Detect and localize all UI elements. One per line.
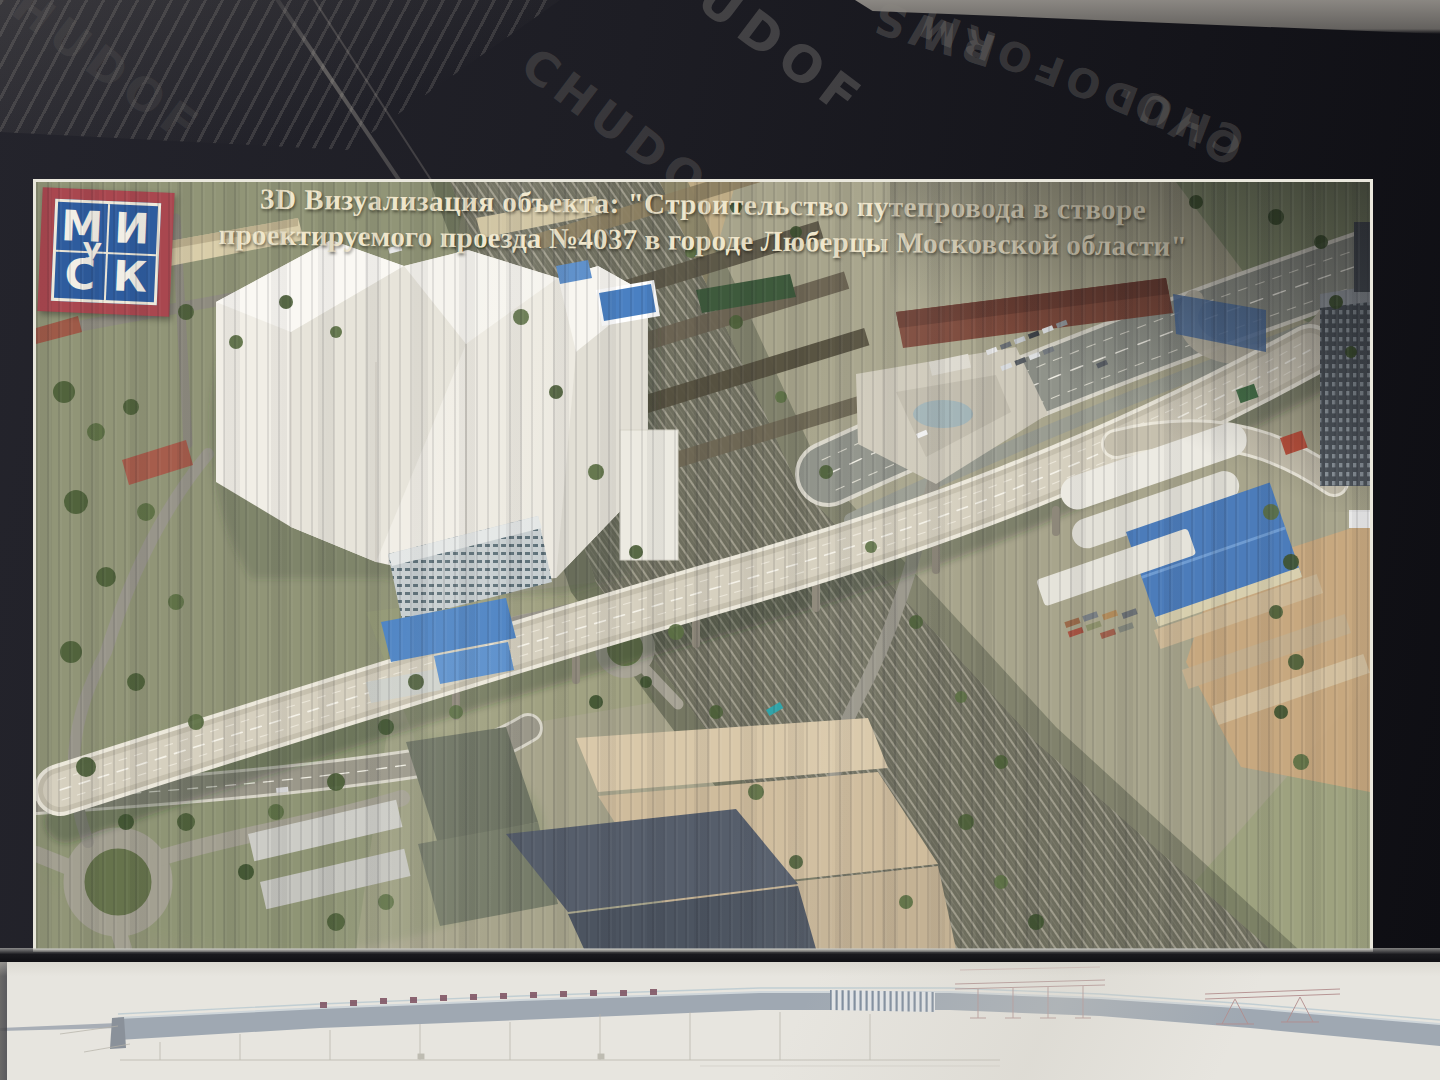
plywood-top-band: CHUDOF CHUDO CHUDOFORM RWS OVO· CHUDOF (0, 0, 1440, 182)
bottom-industrial (406, 718, 956, 949)
visualization-banner: 3D Визуализация объекта: "Строительство … (33, 179, 1373, 952)
aerial-render (36, 182, 1370, 949)
logo-letter-overlay: У (81, 237, 102, 268)
paper-creases (0, 962, 1440, 1080)
watermark-text: CHUDO (511, 37, 721, 182)
logo-letter: К (104, 252, 156, 302)
frame-bottom-edge (0, 948, 1440, 962)
musk-logo: М И С К У (37, 187, 174, 317)
watermark-text: CHUDOF (610, 0, 878, 132)
billboard-photo: CHUDOF CHUDO CHUDOFORM RWS OVO· CHUDOF (0, 0, 1440, 1080)
technical-drawing-strip (0, 962, 1440, 1080)
logo-field: М И С К У (51, 199, 161, 306)
watermark-text: OVO· (1102, 66, 1250, 176)
logo-letter: И (106, 204, 158, 256)
